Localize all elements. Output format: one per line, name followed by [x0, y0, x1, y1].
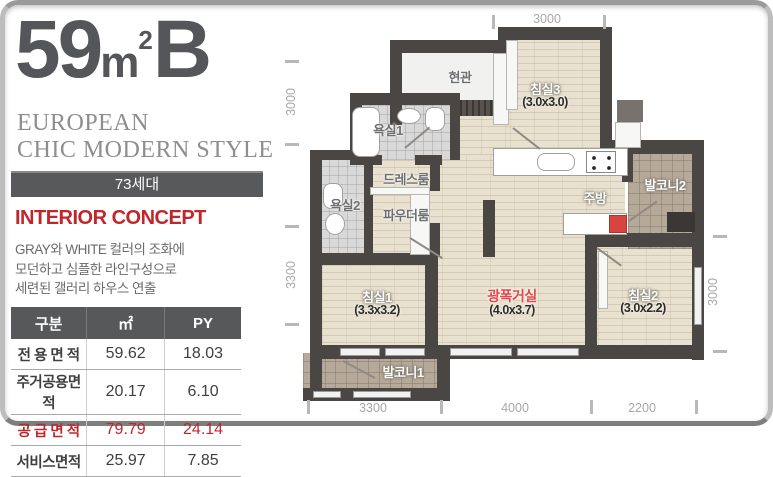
concept-line: 세련된 갤러리 하우스 연출	[15, 279, 184, 299]
row-py: 24.14	[165, 415, 241, 446]
dim-tick	[590, 400, 593, 414]
wall	[498, 27, 612, 40]
row-m2: 79.79	[87, 415, 165, 446]
row-m2: 59.62	[87, 339, 165, 370]
row-m2: 25.97	[87, 446, 165, 477]
dim-bottom-2: 4000	[485, 401, 545, 415]
table-row: 서비스면적 25.97 7.85	[11, 446, 241, 477]
dim-left-upper: 3000	[284, 72, 298, 132]
refrigerator	[609, 215, 627, 233]
kitchen-pantry	[615, 122, 641, 148]
concept-line: 모던하고 심플한 라인구성으로	[15, 260, 184, 280]
room-dim-bedroom3: (3.0x3.0)	[507, 95, 583, 109]
wall	[425, 253, 438, 347]
household-count-badge: 73세대	[11, 171, 263, 197]
stove	[586, 151, 616, 173]
dim-tick	[285, 60, 299, 63]
row-py: 18.03	[165, 339, 241, 370]
unit-type-letter: B	[153, 4, 209, 95]
wall	[585, 247, 597, 359]
wall	[483, 200, 495, 257]
kitchen-sink	[537, 153, 575, 171]
dim-left-lower: 3300	[284, 245, 298, 305]
wall	[585, 233, 704, 247]
row-label: 공 급 면 적	[11, 415, 87, 446]
room-dim-living: (4.0x3.7)	[471, 303, 553, 317]
wall	[450, 105, 460, 160]
room-label-balcony2: 발코니2	[629, 175, 701, 194]
dim-right: 3000	[706, 262, 720, 322]
table-row: 주거공용면적 20.17 6.10	[11, 370, 241, 415]
dim-tick	[285, 143, 299, 146]
col-header-m2: ㎡	[87, 307, 165, 339]
room-label-kitchen: 주방	[569, 188, 621, 207]
room-dim-bedroom1: (3.3x3.2)	[337, 303, 417, 317]
dim-tick	[492, 15, 495, 29]
window	[450, 348, 512, 356]
window	[517, 348, 579, 356]
interior-concept-title: INTERIOR CONCEPT	[15, 207, 206, 230]
balcony2-ac-unit	[667, 212, 695, 232]
unit-size-superscript: 2	[138, 25, 152, 55]
row-py: 7.85	[165, 446, 241, 477]
room-label-bath2: 욕실2	[320, 195, 370, 214]
style-tagline-line2: CHIC MODERN STYLE	[17, 137, 274, 164]
dim-tick	[713, 350, 727, 353]
bath2-sink	[325, 213, 345, 235]
utility-box	[617, 100, 643, 122]
window	[353, 391, 411, 398]
row-m2: 20.17	[87, 370, 165, 415]
unit-size-number: 59	[15, 4, 100, 95]
room-label-balcony1: 발코니1	[367, 362, 439, 381]
dim-bottom-1: 3300	[343, 401, 403, 415]
dim-top: 3000	[517, 12, 577, 26]
flyer-card: 59m2B EUROPEAN CHIC MODERN STYLE 73세대 IN…	[0, 0, 773, 426]
room-dim-bedroom2: (3.0x2.2)	[603, 301, 683, 315]
window	[694, 267, 702, 325]
room-label-bath1: 욕실1	[365, 120, 411, 139]
area-table: 구분 ㎡ PY 전 용 면 적 59.62 18.03 주거공용면적 20.17…	[11, 307, 241, 477]
window	[385, 348, 425, 356]
style-tagline-line1: EUROPEAN	[17, 110, 274, 137]
row-label: 전 용 면 적	[11, 339, 87, 370]
room-label-powderroom: 파우더룸	[373, 205, 439, 224]
col-header-category: 구분	[11, 307, 87, 339]
dim-tick	[603, 15, 606, 29]
row-py: 6.10	[165, 370, 241, 415]
dim-tick	[695, 400, 698, 414]
wall	[390, 40, 510, 53]
style-tagline: EUROPEAN CHIC MODERN STYLE	[17, 110, 274, 164]
wall	[692, 140, 704, 360]
unit-size-unit: m	[100, 38, 138, 87]
col-header-py: PY	[165, 307, 241, 339]
dim-tick	[440, 400, 443, 414]
concept-description: GRAY와 WHITE 컬러의 조화에 모던하고 심플한 라인구성으로 세련된 …	[15, 240, 184, 299]
area-table-header-row: 구분 ㎡ PY	[11, 307, 241, 339]
floor-plan: 현관 침실3 (3.0x3.0) 욕실1 드레스룸 파우더룸 욕실2 주방 발코…	[285, 15, 730, 425]
window	[340, 348, 380, 356]
wall	[310, 150, 322, 400]
dim-tick	[285, 225, 299, 228]
table-row: 전 용 면 적 59.62 18.03	[11, 339, 241, 370]
room-label-dressroom: 드레스룸	[373, 169, 439, 188]
row-label: 서비스면적	[11, 446, 87, 477]
dim-bottom-3: 2200	[612, 401, 672, 415]
table-row-highlight: 공 급 면 적 79.79 24.14	[11, 415, 241, 446]
dim-tick	[713, 235, 727, 238]
wall	[350, 93, 460, 105]
dim-tick	[307, 400, 310, 414]
dress-shelf	[370, 187, 430, 195]
unit-size-title: 59m2B	[15, 3, 209, 97]
row-label: 주거공용면적	[11, 370, 87, 415]
concept-line: GRAY와 WHITE 컬러의 조화에	[15, 240, 184, 260]
info-panel: 59m2B EUROPEAN CHIC MODERN STYLE 73세대 IN…	[15, 7, 283, 427]
window	[313, 391, 341, 398]
room-label-entrance: 현관	[428, 67, 492, 86]
dim-tick	[285, 323, 299, 326]
